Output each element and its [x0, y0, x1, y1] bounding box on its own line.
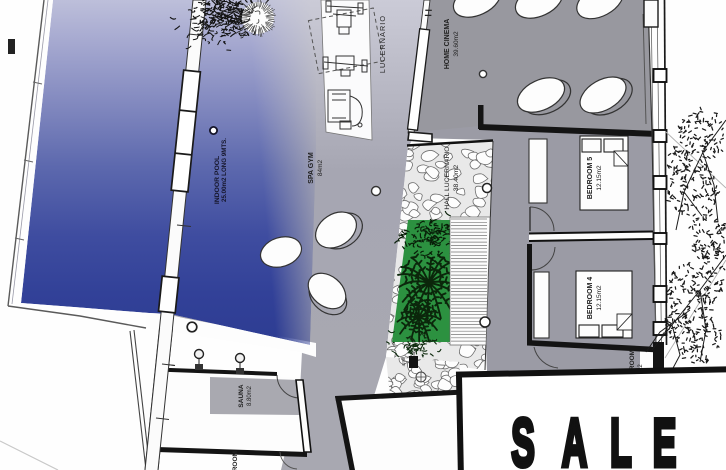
svg-text:LUCERNARIO: LUCERNARIO [378, 15, 387, 73]
svg-text:BEDROOM: BEDROOM [232, 451, 239, 470]
svg-text:38.40m2: 38.40m2 [453, 165, 460, 192]
svg-text:BEDROOM 4: BEDROOM 4 [587, 277, 594, 320]
svg-text:E: E [653, 406, 677, 470]
svg-text:12.15m2: 12.15m2 [596, 165, 603, 191]
svg-text:A: A [562, 406, 588, 470]
svg-text:L: L [610, 406, 632, 470]
svg-text:39.60m2: 39.60m2 [453, 31, 460, 57]
svg-text:ROOM: ROOM [629, 350, 636, 370]
svg-text:25.00m2 LONG 9MTS.: 25.00m2 LONG 9MTS. [221, 138, 228, 202]
svg-text:BEDROOM 5: BEDROOM 5 [587, 157, 594, 200]
svg-text:84m2: 84m2 [317, 159, 324, 176]
svg-text:HOME CINEMA: HOME CINEMA [444, 19, 451, 70]
svg-text:8.80m2: 8.80m2 [247, 385, 253, 406]
svg-text:12.15m2: 12.15m2 [596, 285, 603, 311]
svg-text:HALL LUCERNARIO: HALL LUCERNARIO [444, 146, 451, 209]
svg-text:4.98: 4.98 [401, 357, 406, 366]
svg-text:SAUNA: SAUNA [238, 384, 245, 407]
svg-text:SPA GYM: SPA GYM [308, 152, 315, 184]
svg-text:INDOOR POOL: INDOOR POOL [214, 156, 221, 204]
svg-text:S: S [511, 406, 535, 470]
